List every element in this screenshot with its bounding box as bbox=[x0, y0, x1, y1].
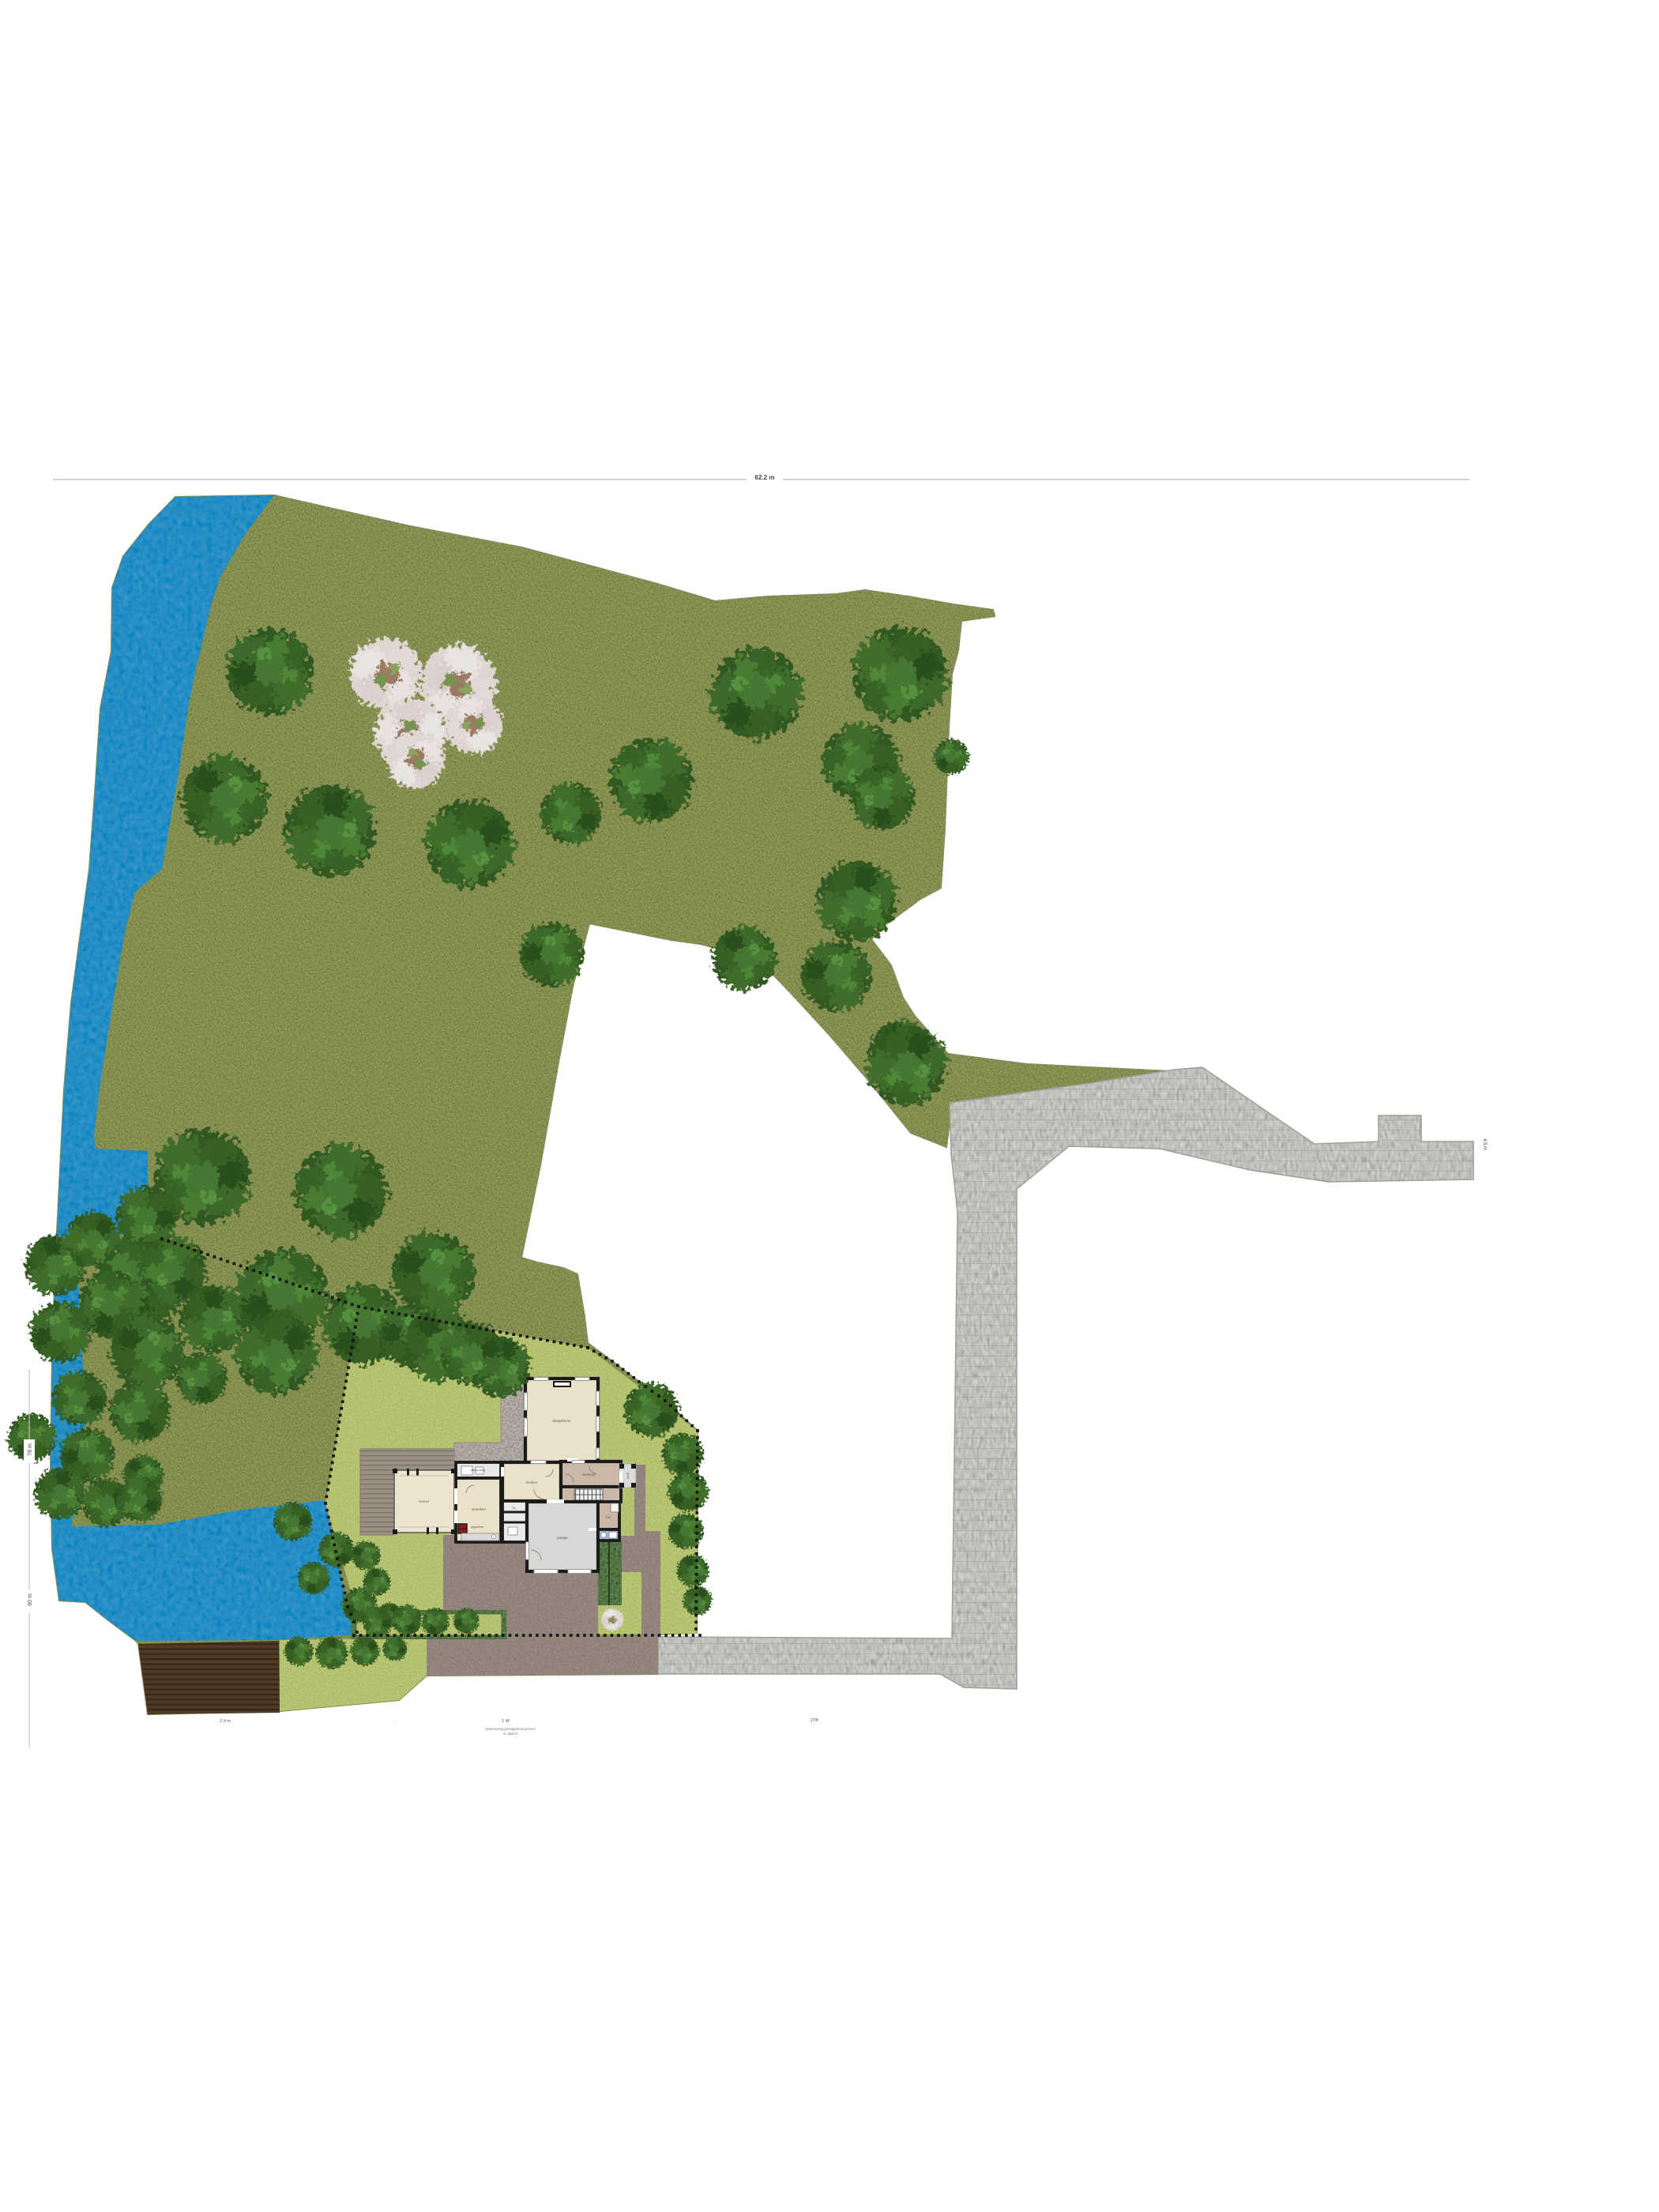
svg-text:bestemming grondgebruik percee: bestemming grondgebruik perceel bbox=[485, 1727, 535, 1731]
svg-text:27B: 27B bbox=[811, 1718, 818, 1723]
svg-text:1 W: 1 W bbox=[502, 1719, 510, 1724]
svg-text:Kamer: Kamer bbox=[419, 1499, 430, 1503]
svg-text:2.9 m: 2.9 m bbox=[220, 1719, 231, 1724]
svg-text:Slaapkamer: Slaapkamer bbox=[552, 1419, 571, 1423]
svg-text:garage: garage bbox=[557, 1536, 568, 1540]
svg-text:grnd: grnd bbox=[626, 1473, 630, 1479]
svg-text:bk.: bk. bbox=[512, 1507, 516, 1510]
svg-text:4.5 m: 4.5 m bbox=[1482, 1138, 1487, 1150]
svg-text:opgeklmd: opgeklmd bbox=[471, 1525, 483, 1529]
svg-text:60 m: 60 m bbox=[28, 1593, 33, 1606]
svg-text:overloop: overloop bbox=[582, 1473, 596, 1477]
svg-text:keuken: keuken bbox=[526, 1480, 538, 1484]
svg-text:aansluiting: aansluiting bbox=[471, 1469, 485, 1472]
svg-text:62.2 m: 62.2 m bbox=[755, 474, 775, 481]
svg-text:hal: hal bbox=[606, 1515, 611, 1519]
svg-text:woonkmr: woonkmr bbox=[472, 1507, 486, 1511]
svg-text:78 m: 78 m bbox=[28, 1443, 33, 1456]
svg-text:nr. 2641-b: nr. 2641-b bbox=[503, 1732, 519, 1736]
